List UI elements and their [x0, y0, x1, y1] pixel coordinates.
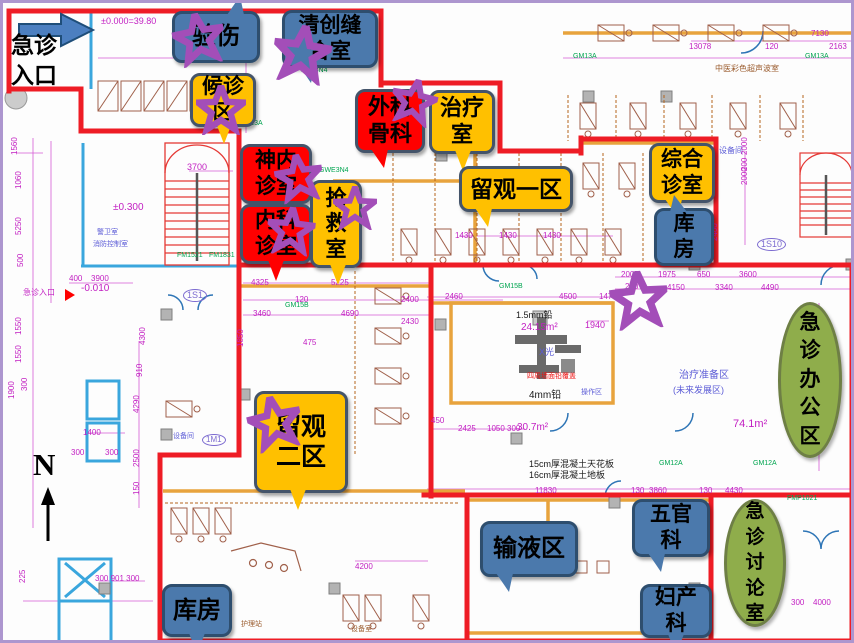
storage-room-1: 库 房 — [654, 208, 714, 266]
obstetrics-gynecology: 妇产 科 — [640, 584, 712, 638]
storage-room-2-label: 库房 — [173, 596, 221, 625]
callout-tail — [268, 260, 284, 281]
internal-medicine-clinic: 内科 诊室 — [240, 204, 312, 264]
emergency-office-area-label: 急 诊 办 公 区 — [800, 309, 821, 451]
observation-area-2: 留观 二区 — [254, 391, 348, 493]
annotation-layer: 急诊 入口 N 验伤清创缝 合室候诊 区外科 骨科治疗 室神内 诊室内科 诊室抢… — [3, 3, 851, 640]
observation-area-1: 留观一区 — [459, 166, 573, 212]
waiting-area: 候诊 区 — [190, 73, 256, 127]
observation-area-1-label: 留观一区 — [470, 175, 562, 203]
debridement-suture-room-label: 清创缝 合室 — [299, 13, 362, 64]
ent-department-label: 五官 科 — [650, 502, 692, 553]
internal-medicine-clinic-label: 内科 诊室 — [255, 208, 297, 259]
general-clinic-label: 综合 诊室 — [661, 147, 703, 198]
callout-tail — [216, 123, 232, 144]
neurology-clinic: 神内 诊室 — [240, 144, 312, 204]
north-letter: N — [33, 447, 63, 483]
neurology-clinic-label: 神内 诊室 — [255, 148, 297, 199]
callout-tail — [475, 208, 492, 227]
callout-tail — [648, 553, 665, 572]
surgery-orthopedics: 外科 骨科 — [355, 89, 425, 153]
entrance-label: 急诊 入口 — [11, 31, 57, 91]
general-clinic: 综合 诊室 — [649, 143, 715, 203]
ent-department: 五官 科 — [632, 499, 710, 557]
observation-area-2-label: 留观 二区 — [276, 412, 326, 473]
infusion-area-label: 输液区 — [493, 534, 565, 563]
emergency-discussion-room: 急 诊 讨 论 室 — [724, 499, 786, 627]
north-arrow-icon — [33, 483, 63, 543]
injury-inspection-label: 验伤 — [192, 22, 240, 51]
injury-inspection: 验伤 — [172, 11, 260, 63]
callout-tail — [290, 489, 306, 510]
callout-tail — [189, 633, 205, 643]
debridement-suture-room: 清创缝 合室 — [282, 10, 378, 68]
treatment-room-label: 治疗 室 — [440, 95, 484, 149]
storage-room-2: 库房 — [162, 584, 232, 637]
emergency-discussion-room-label: 急 诊 讨 论 室 — [745, 499, 764, 627]
callout-tail — [371, 149, 388, 168]
infusion-area: 输液区 — [480, 521, 578, 577]
callout-tail — [496, 573, 513, 592]
north-indicator: N — [33, 447, 63, 548]
storage-room-1-label: 库 房 — [674, 211, 695, 262]
surgery-orthopedics-label: 外科 骨科 — [368, 94, 412, 148]
emergency-office-area: 急 诊 办 公 区 — [778, 302, 842, 458]
callout-tail — [670, 195, 687, 212]
callout-tail — [298, 64, 315, 83]
callout-tail — [227, 0, 244, 15]
callout-tail — [668, 634, 684, 643]
waiting-area-label: 候诊 区 — [202, 74, 244, 125]
obstetrics-gynecology-label: 妇产 科 — [655, 585, 697, 636]
rescue-room-label: 抢 救 室 — [326, 186, 347, 263]
rescue-room: 抢 救 室 — [310, 180, 362, 268]
treatment-room: 治疗 室 — [429, 90, 495, 154]
callout-tail — [330, 264, 346, 285]
floor-plan-annotated: ±0.000=39.80±0.300-0.010370039004001S11M… — [0, 0, 854, 643]
